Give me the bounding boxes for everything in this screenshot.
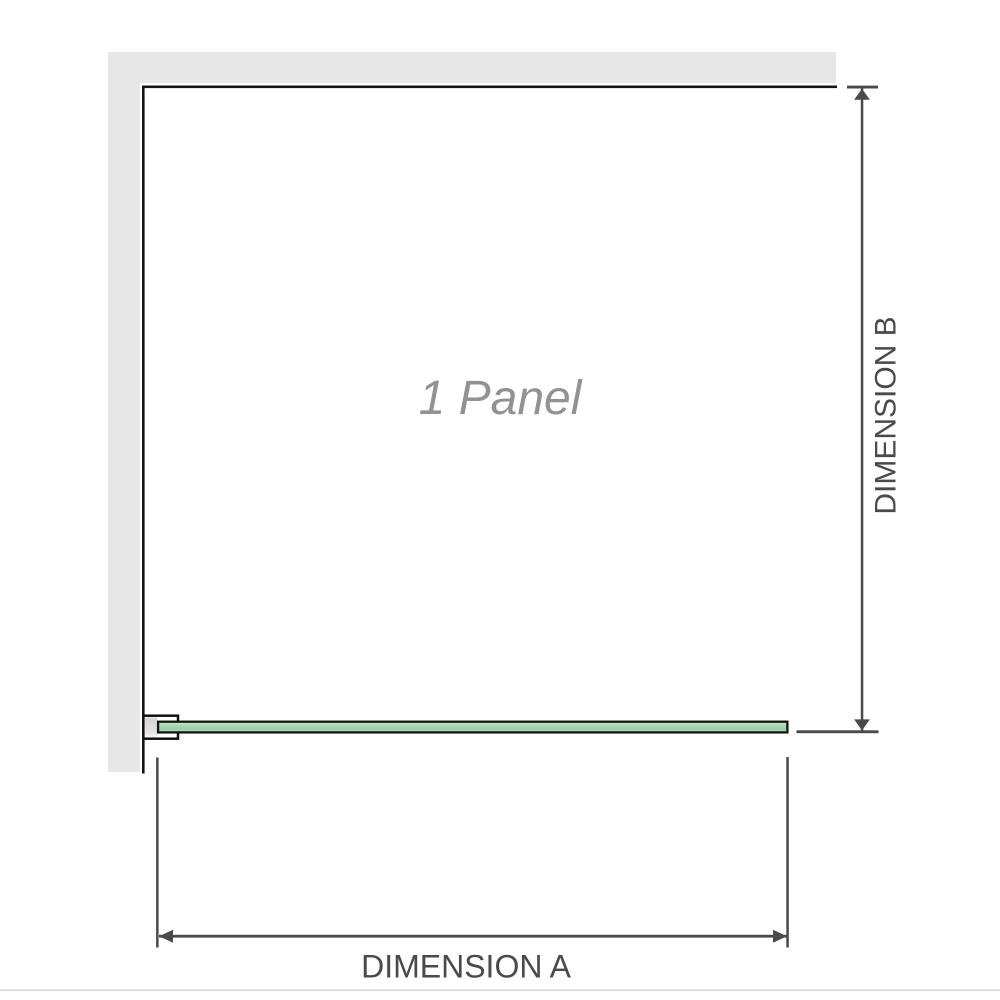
svg-text:1 Panel: 1 Panel [419,372,583,425]
svg-text:DIMENSION B: DIMENSION B [870,316,903,514]
svg-text:DIMENSION A: DIMENSION A [361,949,571,985]
